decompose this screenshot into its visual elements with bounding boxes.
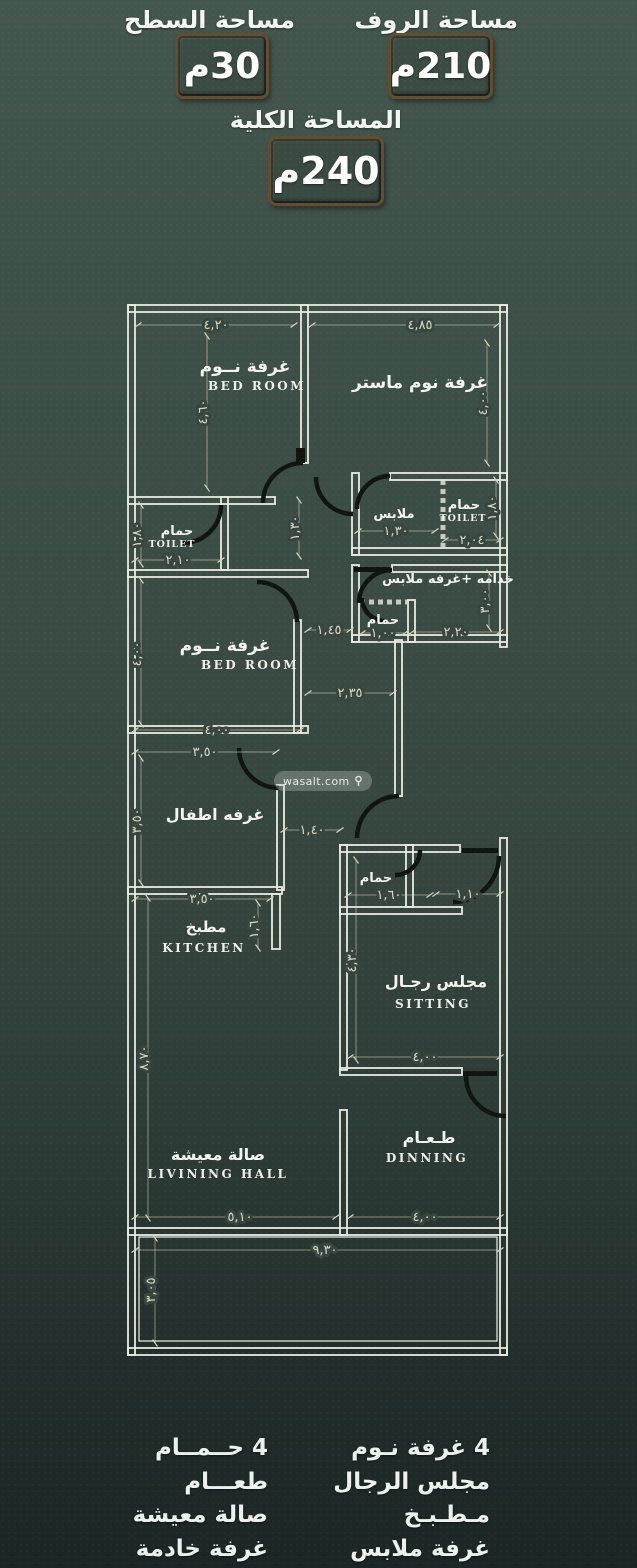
room-kids-ar: غرفه اطفال — [166, 805, 265, 824]
room-toilet-left-ar: حمام — [161, 524, 194, 539]
room-kitchen-ar: مطبخ — [186, 918, 227, 936]
wall-segment — [340, 1110, 347, 1235]
dim-maid-w: ٢,٢٠ — [443, 625, 468, 640]
wall-segment — [406, 845, 413, 907]
dim-sitting-bath-w1: ١,٦٠ — [376, 888, 401, 903]
roof-area-value-box: 210م — [388, 33, 493, 99]
legend-item: غرفة خادمة — [133, 1533, 268, 1567]
roof-area-value: 210م — [390, 46, 492, 87]
wall-segment — [500, 838, 507, 1355]
wall-segment — [128, 305, 507, 312]
room-bedroom1-ar: غرفة نــوم — [200, 357, 291, 377]
total-area-label: المساحة الكلية — [242, 106, 402, 134]
room-sitting-en: SITTING — [395, 997, 471, 1011]
legend-column-left: 4 حــمــام طعـــام صالة معيشة غرفة خادمة — [133, 1432, 268, 1566]
room-maid-bath-ar: حمام — [367, 613, 400, 628]
dim-maid-side: ٣,٠٠ — [478, 588, 493, 613]
wall-segment — [340, 907, 462, 914]
surface-area-label: مساحة السطح — [135, 6, 295, 34]
legend-item: مجلس الرجال — [333, 1466, 490, 1500]
watermark-text: wasalt.com — [283, 775, 350, 788]
dim-kitchen-w: ٣,٥٠ — [189, 892, 214, 907]
dim-toilet-left-side: ١,٨٠ — [130, 522, 145, 547]
door-leaf — [296, 448, 305, 463]
wall-segment — [128, 1348, 507, 1355]
room-master-ar: غرفة نوم ماستر — [351, 373, 488, 393]
room-sitting-ar: مجلس رجـال — [385, 972, 487, 991]
room-closet-ar: ملابس — [373, 507, 414, 522]
floorplan-poster: مساحة الروف 210م مساحة السطح 30م المساحة… — [0, 0, 637, 1568]
dim-kids-side: ٣,٥٠ — [130, 808, 145, 833]
dim-hall-w: ١,٤٥ — [316, 623, 341, 638]
wall-segment — [128, 497, 275, 504]
room-dining-ar: طـعـام — [403, 1128, 456, 1147]
room-dining-en: DINNING — [386, 1151, 468, 1165]
room-bedroom1-en: BED ROOM — [208, 379, 306, 393]
room-sitting-bath-ar: حمام — [360, 871, 393, 886]
room-kitchen-en: KITCHEN — [162, 941, 245, 955]
wall-segment — [128, 570, 308, 577]
room-living-ar: صالة معيشة — [171, 1145, 265, 1164]
dim-sitting-bath-w2: ١,١٠ — [455, 887, 480, 902]
dim-toilet-master-side: ١,٨٠ — [485, 495, 500, 520]
dim-corridor-w: ١,٤٠ — [299, 823, 324, 838]
door-swing-arc — [357, 476, 390, 509]
room-toilet-left-en: TOILET — [149, 539, 196, 550]
surface-area-value-box: 30م — [175, 33, 269, 99]
dim-dining-w: ٤,٠٠ — [412, 1210, 437, 1225]
room-bedroom2-ar: غرفة نــوم — [180, 636, 271, 656]
dim-bedroom2-side: ٤,٠٠ — [130, 641, 145, 666]
room-maid-ar: خدامه +غرفه ملابس — [382, 572, 514, 587]
wall-segment — [500, 305, 507, 647]
legend-item: مـطـبـخ — [333, 1499, 490, 1533]
dim-kitchen-side: ١,٦٠ — [247, 913, 262, 938]
dim-living-side: ٨,٧٠ — [137, 1045, 152, 1070]
door-swing-arc — [316, 477, 353, 514]
wall-segment — [340, 1068, 462, 1075]
wall-segment — [352, 548, 507, 555]
watermark-badge: wasalt.com — [274, 771, 372, 791]
room-toilet-master-ar: حمام — [448, 498, 481, 513]
surface-area-value: 30م — [184, 46, 261, 87]
door-swing-arc — [395, 850, 420, 875]
legend-item: 4 غرفة نـوم — [333, 1432, 490, 1466]
dim-corridor-side: ١,٣٠ — [288, 515, 303, 540]
dim-closet-w: ١,٣٠ — [383, 524, 408, 539]
floor-plan: ٤,٢٠ ٤,٨٥ ٤,٦٠ ٤,٠٠ ١,٨٠ ٢,١٠ ١,٣٠ ١,٣٠ … — [0, 288, 637, 1368]
dim-toilet-left-w: ٢,١٠ — [165, 553, 190, 568]
dim-living-w: ٥,١٠ — [227, 1210, 252, 1225]
dim-master-top: ٤,٨٥ — [407, 318, 432, 333]
legend-item: صالة معيشة — [133, 1499, 268, 1533]
dim-master-side: ٤,٠٠ — [476, 390, 491, 415]
dim-sitting-w: ٤,٠٠ — [412, 1050, 437, 1065]
total-area-value: 240م — [272, 149, 379, 193]
dim-bedroom1-top: ٤,٢٠ — [203, 318, 228, 333]
legend-item: 4 حــمــام — [133, 1432, 268, 1466]
wall-segment — [294, 620, 301, 733]
location-pin-icon — [354, 775, 363, 787]
room-bedroom2-en: BED ROOM — [201, 658, 299, 672]
wall-segment — [272, 894, 280, 949]
door-swing-arc — [357, 796, 399, 838]
door-swing-arc — [239, 748, 279, 788]
door-swing-arc — [257, 582, 297, 622]
dim-sitting-side: ٤,٣٠ — [345, 947, 360, 972]
total-area-value-box: 240م — [268, 136, 384, 206]
dim-plot-w: ٩,٣٠ — [312, 1243, 337, 1258]
legend-item: غرفة ملابس — [333, 1533, 490, 1567]
dim-bedroom1-side: ٤,٦٠ — [196, 399, 211, 424]
legend-item: طعـــام — [133, 1466, 268, 1500]
dim-kids-w: ٣,٥٠ — [192, 745, 217, 760]
dim-bedroom2-w: ٤,٠٠ — [204, 723, 229, 738]
wall-segment — [390, 473, 507, 480]
wall-segment — [352, 473, 359, 555]
dim-yard-side: ٣,٠٥ — [144, 1277, 159, 1302]
legend-column-right: 4 غرفة نـوم مجلس الرجال مـطـبـخ غرفة ملا… — [333, 1432, 490, 1566]
wall-segment — [340, 845, 460, 852]
wall-segment — [352, 565, 359, 642]
wall-segment — [392, 565, 507, 572]
roof-area-label: مساحة الروف — [358, 6, 518, 34]
room-living-en: LIVINING HALL — [148, 1167, 289, 1181]
wall-segment — [395, 640, 402, 796]
room-toilet-master-en: TOILET — [440, 513, 487, 524]
wall-segment — [277, 785, 284, 890]
dim-toilet-master-w: ٢,٠٤ — [459, 533, 484, 548]
door-leaf — [463, 1071, 497, 1076]
wall-segment — [128, 1228, 507, 1235]
dim-hall-w2: ٢,٣٥ — [337, 686, 362, 701]
door-leaf — [462, 848, 498, 853]
dim-maid-bath-w: ١,٠٠ — [370, 626, 395, 641]
